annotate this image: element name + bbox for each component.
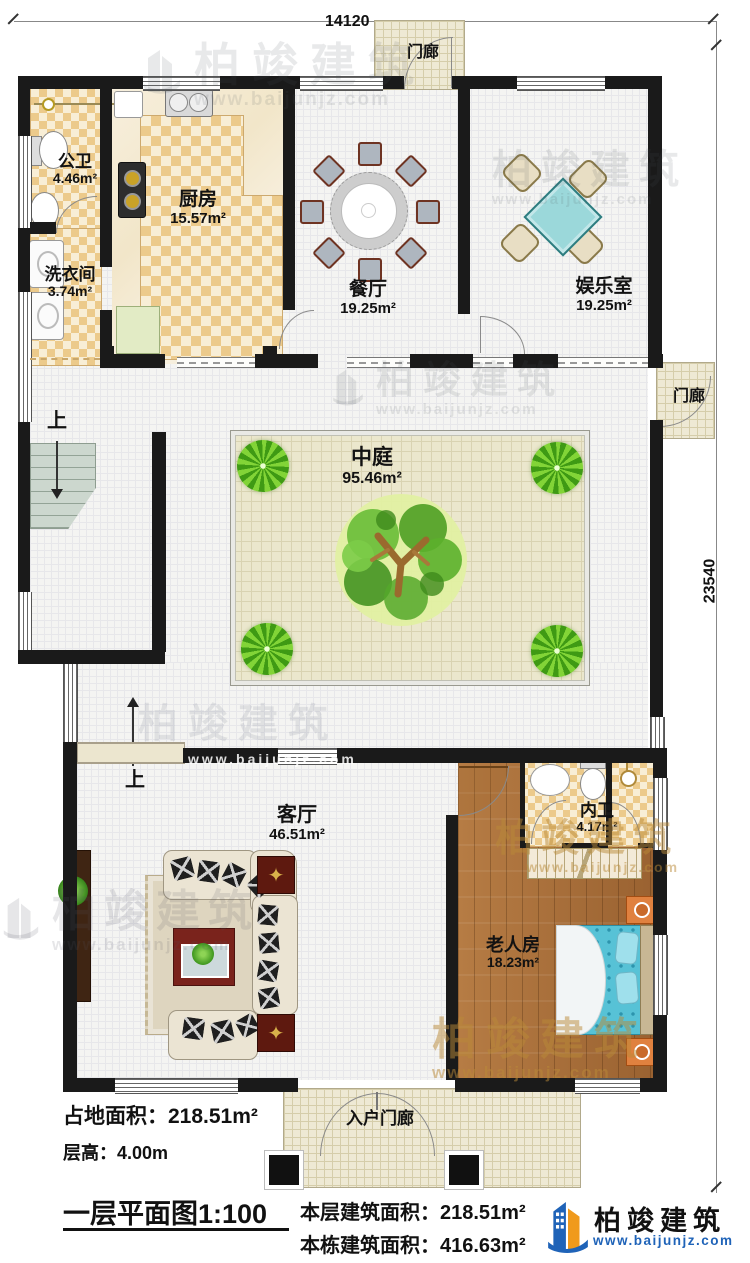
- room-area: 19.25m²: [549, 298, 659, 314]
- sofa-cushion: [257, 904, 279, 926]
- room-area: 4.46m²: [20, 171, 130, 186]
- room-label-game: 娱乐室 19.25m²: [549, 277, 659, 314]
- room-area: 46.51m²: [242, 827, 352, 843]
- shower-head: [620, 770, 637, 787]
- wall-segment: [513, 354, 558, 368]
- sofa-cushion: [257, 986, 280, 1009]
- brand-url: www.baijunjz.com: [593, 1233, 734, 1248]
- shrub-plant: [241, 623, 293, 675]
- table-plant: [192, 943, 214, 965]
- wall-segment: [458, 88, 470, 314]
- pipe-valve: [42, 98, 55, 111]
- sofa-cushion: [182, 1017, 206, 1041]
- room-label-kitchen: 厨房 15.57m²: [143, 190, 253, 227]
- room-name: 娱乐室: [549, 277, 659, 298]
- total-area-text: 本栋建筑面积：416.63m²: [300, 1229, 526, 1258]
- sliding-window-sill: [473, 357, 513, 368]
- wall-segment: [63, 1078, 115, 1092]
- wall-segment: [18, 76, 143, 89]
- bay-window: [77, 742, 185, 764]
- dining-chair: [300, 200, 324, 224]
- pillow: [614, 931, 639, 965]
- sofa-cushion: [258, 932, 280, 954]
- sofa-cushion: [256, 959, 279, 982]
- room-area: 95.46m²: [317, 470, 427, 487]
- wall-segment: [455, 1078, 575, 1092]
- window: [650, 717, 665, 748]
- dining-chair: [358, 142, 382, 166]
- window: [18, 592, 32, 650]
- wall-segment: [337, 748, 667, 763]
- sink: [530, 764, 570, 796]
- kitchen-sink-bowl: [169, 93, 188, 112]
- nightstand-knob: [634, 1044, 650, 1060]
- wall-segment: [446, 815, 458, 1080]
- brand-logo-icon: [545, 1194, 591, 1254]
- column: [449, 1155, 479, 1185]
- room-name: 公卫: [20, 153, 130, 171]
- sliding-window-sill: [558, 357, 650, 368]
- room-name: 洗衣间: [15, 266, 125, 284]
- window: [575, 1078, 640, 1094]
- porch-label-right: 门廊: [664, 388, 714, 405]
- wall-segment: [383, 76, 404, 89]
- room-name: 客厅: [242, 805, 352, 827]
- porch-label-top: 门廊: [398, 44, 448, 61]
- window: [18, 362, 32, 422]
- brand-logo-icon: [0, 890, 42, 944]
- pillow: [615, 971, 640, 1005]
- washing-machine-door: [37, 303, 59, 329]
- room-label-atrium: 中庭 95.46m²: [317, 447, 427, 487]
- toilet: [580, 768, 606, 800]
- shrub-plant: [531, 625, 583, 677]
- wall-segment: [653, 748, 667, 778]
- wall-segment: [648, 88, 662, 356]
- room-label-dining: 餐厅 19.25m²: [313, 280, 423, 317]
- wall-segment: [63, 742, 77, 1078]
- compass-star-icon: ✦: [268, 863, 285, 888]
- room-name: 中庭: [317, 447, 427, 470]
- wall-segment: [18, 422, 30, 592]
- courtyard-tree: [328, 490, 474, 630]
- room-name: 老人房: [458, 936, 568, 955]
- dimension-line-right: [716, 21, 717, 1193]
- dimension-width-label: 14120: [325, 13, 370, 31]
- sliding-window-sill: [347, 357, 410, 368]
- door-leaf: [376, 1092, 378, 1110]
- wall-segment: [410, 354, 473, 368]
- sofa-cushion: [210, 1019, 235, 1044]
- sofa-cushion: [197, 860, 221, 884]
- stair-arrow-head: [51, 489, 63, 499]
- shrub-plant: [531, 442, 583, 494]
- porch-label-entry: 入户门廊: [330, 1110, 430, 1128]
- room-name: 厨房: [143, 190, 253, 211]
- room-label-laundry: 洗衣间 3.74m²: [15, 266, 125, 299]
- window: [278, 748, 337, 765]
- kitchen-counter: [116, 306, 160, 354]
- wall-segment: [472, 76, 517, 89]
- wall-segment: [638, 843, 653, 848]
- shrub-plant: [237, 440, 289, 492]
- wall-segment: [238, 1078, 298, 1092]
- window: [653, 778, 668, 850]
- nightstand-knob: [634, 902, 650, 918]
- floor-height-text: 层高：4.00m: [63, 1139, 168, 1165]
- kitchen-sink-bowl: [189, 93, 208, 112]
- wall-segment: [283, 88, 295, 310]
- compass-star-icon: ✦: [268, 1021, 285, 1046]
- door-leaf: [480, 316, 481, 353]
- wall-segment: [255, 354, 318, 368]
- room-name: 餐厅: [313, 280, 423, 301]
- wardrobe: [527, 848, 642, 879]
- dining-table-center: [361, 203, 376, 218]
- floor-area-text: 本层建筑面积：218.51m²: [300, 1196, 526, 1225]
- wall-segment: [640, 1078, 667, 1092]
- wall-segment: [653, 850, 667, 935]
- room-label-elder: 老人房 18.23m²: [458, 936, 568, 971]
- sliding-window-sill: [177, 357, 255, 368]
- dimension-height-label: 23540: [701, 559, 719, 604]
- room-name: 内卫: [542, 802, 652, 820]
- room-area: 3.74m²: [15, 284, 125, 299]
- dining-chair: [416, 200, 440, 224]
- dimension-tick: [8, 13, 19, 24]
- floorplan-canvas: 14120 23540: [0, 0, 750, 1263]
- room-label-inner-bath: 内卫 4.17m²: [542, 802, 652, 834]
- wall-segment: [152, 432, 166, 652]
- wall-segment: [650, 420, 663, 437]
- room-area: 4.17m²: [542, 820, 652, 834]
- window: [517, 76, 605, 91]
- stairs-up-label: 上: [122, 770, 148, 792]
- room-label-living: 客厅 46.51m²: [242, 805, 352, 843]
- wall-segment: [520, 843, 530, 848]
- stair-arrow-line: [56, 441, 58, 491]
- stove-burner: [124, 193, 141, 210]
- wall-segment: [18, 76, 30, 136]
- room-area: 15.57m²: [143, 211, 253, 227]
- door-leaf: [459, 766, 508, 768]
- window: [653, 935, 668, 1015]
- stairs-up-label: 上: [44, 411, 70, 433]
- wall-segment: [100, 233, 112, 267]
- room-label-public-bath: 公卫 4.46m²: [20, 153, 130, 186]
- land-area-text: 占地面积：218.51m²: [63, 1100, 258, 1130]
- wall-segment: [18, 650, 165, 664]
- window: [143, 76, 220, 91]
- side-table: ✦: [257, 1014, 295, 1052]
- stair-arrow-head: [127, 697, 139, 707]
- window: [63, 664, 78, 748]
- wall-segment: [520, 763, 525, 845]
- wall-segment: [183, 748, 278, 763]
- fridge: [114, 91, 143, 118]
- window: [300, 76, 383, 91]
- wall-segment: [650, 437, 663, 717]
- wall-segment: [263, 346, 277, 356]
- threshold-dashed: [30, 358, 100, 360]
- room-area: 18.23m²: [458, 955, 568, 970]
- wall-segment: [648, 354, 663, 368]
- window: [18, 292, 32, 362]
- window: [115, 1078, 238, 1094]
- wall-segment: [100, 354, 165, 368]
- wall-segment: [30, 222, 56, 234]
- plan-title: 一层平面图1:100: [63, 1192, 267, 1231]
- side-table: ✦: [257, 856, 295, 894]
- porch-entry-floor: [283, 1088, 581, 1188]
- plan-title-underline: [63, 1228, 289, 1231]
- wall-segment: [562, 843, 608, 848]
- room-area: 19.25m²: [313, 301, 423, 317]
- column: [269, 1155, 299, 1185]
